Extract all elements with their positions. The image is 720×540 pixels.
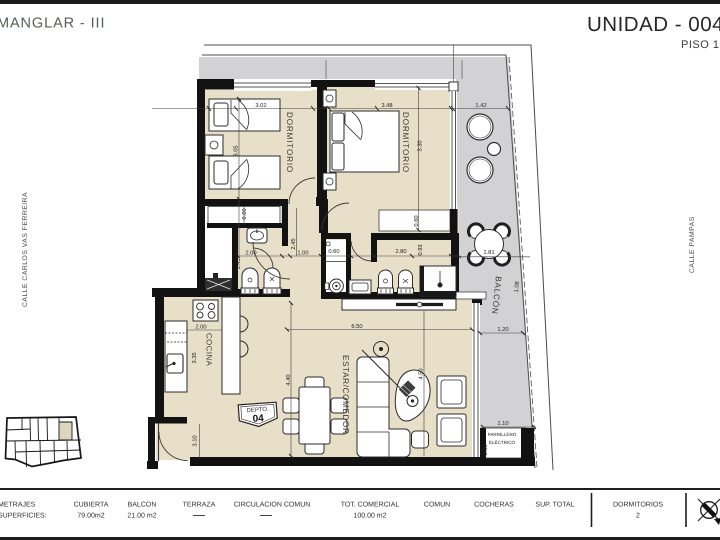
svg-text:4.40: 4.40: [285, 374, 292, 385]
svg-text:3.30: 3.30: [417, 140, 424, 151]
svg-text:DORMITORIO: DORMITORIO: [401, 112, 410, 173]
svg-text:CALLE PAMPAS: CALLE PAMPAS: [689, 216, 696, 273]
svg-text:2.80: 2.80: [395, 248, 406, 255]
svg-text:79.00m2: 79.00m2: [77, 513, 104, 520]
svg-text:2.45: 2.45: [290, 238, 297, 249]
svg-text:UNIDAD - 004: UNIDAD - 004: [587, 13, 720, 36]
svg-text:1.10: 1.10: [497, 420, 508, 427]
svg-text:21.00 m2: 21.00 m2: [127, 513, 156, 520]
svg-text:1.42: 1.42: [475, 102, 486, 109]
svg-text:04: 04: [252, 413, 264, 425]
svg-text:3.35: 3.35: [191, 352, 198, 363]
svg-text:3.05: 3.05: [233, 145, 240, 156]
svg-text:PISO 12: PISO 12: [681, 39, 720, 51]
svg-text:4.50: 4.50: [418, 368, 425, 379]
svg-text:DORMITORIOS: DORMITORIOS: [613, 502, 663, 509]
svg-text:0.60: 0.60: [241, 208, 248, 219]
svg-text:COCHERAS: COCHERAS: [474, 502, 514, 509]
svg-text:2.00: 2.00: [245, 250, 256, 257]
svg-text:6.50: 6.50: [351, 323, 362, 330]
svg-text:DORMITORIO: DORMITORIO: [285, 112, 294, 173]
svg-text:BALCON: BALCON: [128, 502, 157, 509]
svg-text:0.60: 0.60: [413, 215, 420, 226]
svg-text:3.48: 3.48: [381, 102, 392, 109]
svg-text:1.00: 1.00: [297, 250, 308, 257]
svg-text:TOT. COMERCIAL: TOT. COMERCIAL: [341, 502, 400, 509]
svg-text:0.60: 0.60: [482, 444, 489, 455]
svg-text:100.00 m2: 100.00 m2: [353, 513, 386, 520]
svg-text:ELÉCTRICO: ELÉCTRICO: [489, 440, 516, 445]
svg-text:2: 2: [636, 513, 640, 520]
svg-text:SUP. TOTAL: SUP. TOTAL: [535, 502, 574, 509]
svg-text:MANGLAR - III: MANGLAR - III: [0, 16, 105, 32]
svg-text:CUBIERTA: CUBIERTA: [74, 502, 109, 509]
svg-text:1.81: 1.81: [483, 249, 494, 256]
svg-text:CALLE CARLOS VAS FERREIRA: CALLE CARLOS VAS FERREIRA: [22, 192, 29, 307]
svg-text:COMUN: COMUN: [424, 502, 450, 509]
svg-text:1.08: 1.08: [513, 281, 521, 293]
svg-text:TERRAZA: TERRAZA: [183, 502, 216, 509]
svg-text:3.10: 3.10: [192, 435, 199, 446]
svg-text:CIRCULACION COMUN: CIRCULACION COMUN: [234, 502, 311, 509]
svg-text:0.60: 0.60: [328, 248, 339, 255]
svg-text:METRAJES: METRAJES: [0, 502, 36, 509]
svg-text:SUPERFICIES:: SUPERFICIES:: [0, 513, 47, 520]
svg-text:3.02: 3.02: [255, 102, 266, 109]
svg-text:1.45: 1.45: [236, 258, 242, 269]
svg-text:PARRILLERO: PARRILLERO: [488, 432, 517, 437]
svg-text:0.93: 0.93: [417, 244, 424, 255]
svg-text:COCINA: COCINA: [205, 333, 214, 367]
svg-text:1.20: 1.20: [497, 326, 508, 333]
svg-text:ESTAR/COMEDOR: ESTAR/COMEDOR: [341, 355, 350, 435]
svg-text:2.00: 2.00: [195, 324, 206, 331]
